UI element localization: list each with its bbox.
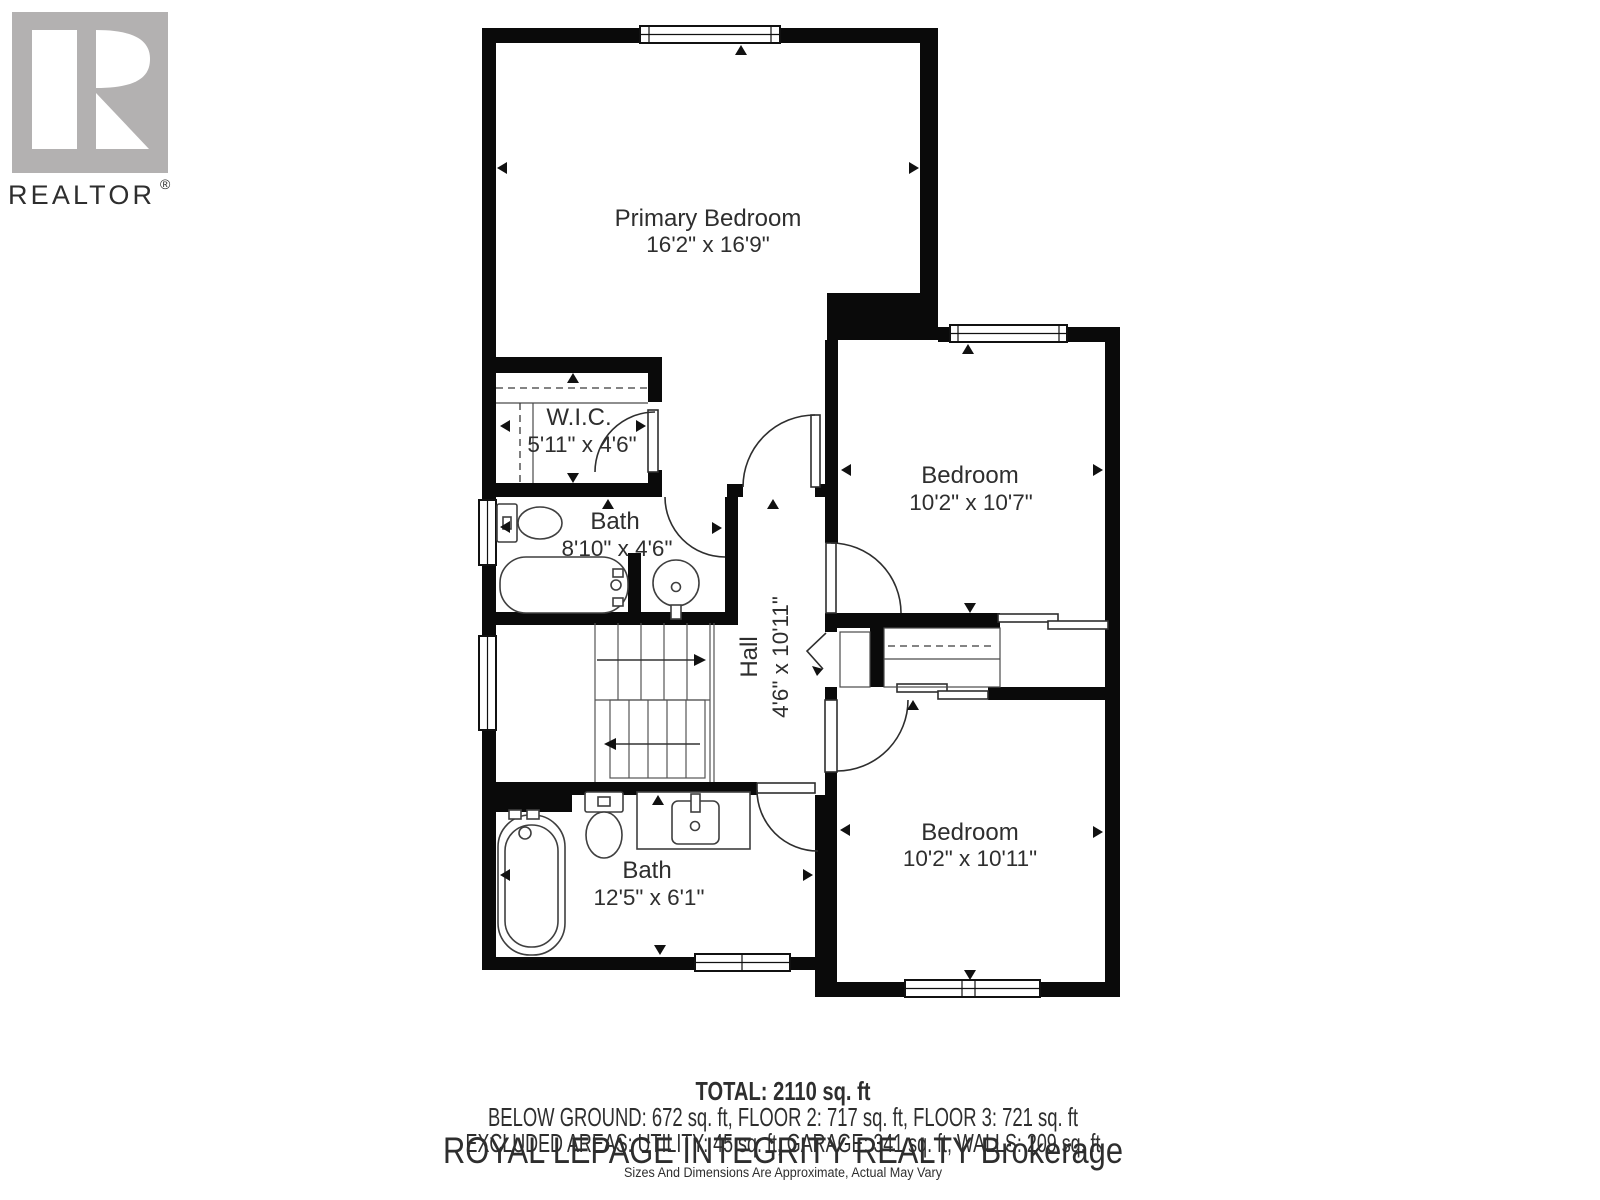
realtor-logo: REALTOR ® (8, 12, 171, 210)
room-label-bath-upper: Bath (590, 508, 639, 535)
staircase (595, 623, 714, 782)
toilet-lower (585, 792, 623, 858)
closet-bedroom-bottom (884, 628, 1000, 687)
door-bedroom-bottom (825, 700, 908, 772)
window-left-upper (479, 500, 496, 565)
window-left-lower (479, 636, 496, 730)
bathtub-upper (500, 557, 628, 613)
realtor-logo-r-bar (32, 30, 77, 149)
room-label-primary-bedroom: Primary Bedroom (615, 205, 802, 232)
room-label-hall: Hall (736, 636, 763, 677)
footer: ROYAL LEPAGE INTEGRITY REALTY Brokerage … (443, 1076, 1123, 1180)
floorplan-page: REALTOR ® (0, 0, 1600, 1200)
room-label-bedroom-top: Bedroom (921, 462, 1018, 489)
room-dims-wic: 5'11" x 4'6" (527, 432, 636, 457)
room-dims-bath-upper: 8'10" x 4'6" (562, 536, 673, 561)
floor-plan-svg: REALTOR ® (0, 0, 1600, 1200)
footer-excluded: EXCLUDED AREAS: UTILITY: 45 sq. ft, GARA… (466, 1128, 1102, 1158)
sliding-door-closet-top (998, 614, 1108, 629)
window-bedroom-bottom (905, 980, 1040, 997)
door-bath-lower (757, 783, 818, 851)
window-bath-lower (695, 954, 790, 971)
window-bedroom-top (950, 325, 1067, 342)
room-dims-hall: 4'6" x 10'11" (768, 596, 793, 718)
sink-upper (653, 560, 699, 619)
footer-disclaimer: Sizes And Dimensions Are Approximate, Ac… (624, 1165, 942, 1180)
window-primary-top (640, 26, 780, 43)
realtor-logo-registered: ® (160, 176, 171, 192)
realtor-logo-text: REALTOR (8, 180, 154, 210)
room-dims-primary-bedroom: 16'2" x 16'9" (646, 232, 769, 257)
room-label-wic: W.I.C. (546, 404, 611, 431)
room-label-bath-lower: Bath (622, 857, 671, 884)
room-dims-bedroom-top: 10'2" x 10'7" (909, 490, 1032, 515)
door-bedroom-top (826, 543, 901, 613)
door-primary-entry (743, 415, 820, 487)
freestanding-tub-lower (498, 810, 565, 955)
sliding-door-closet-bottom (897, 684, 988, 699)
opening-hall-passage (807, 633, 826, 676)
room-label-bedroom-bottom: Bedroom (921, 819, 1018, 846)
room-dims-bath-lower: 12'5" x 6'1" (594, 885, 705, 910)
vanity-sink-lower (637, 792, 750, 849)
closet-alcove (840, 632, 870, 687)
stair-arrow-up (597, 654, 706, 666)
room-dims-bedroom-bottom: 10'2" x 10'11" (903, 846, 1037, 871)
